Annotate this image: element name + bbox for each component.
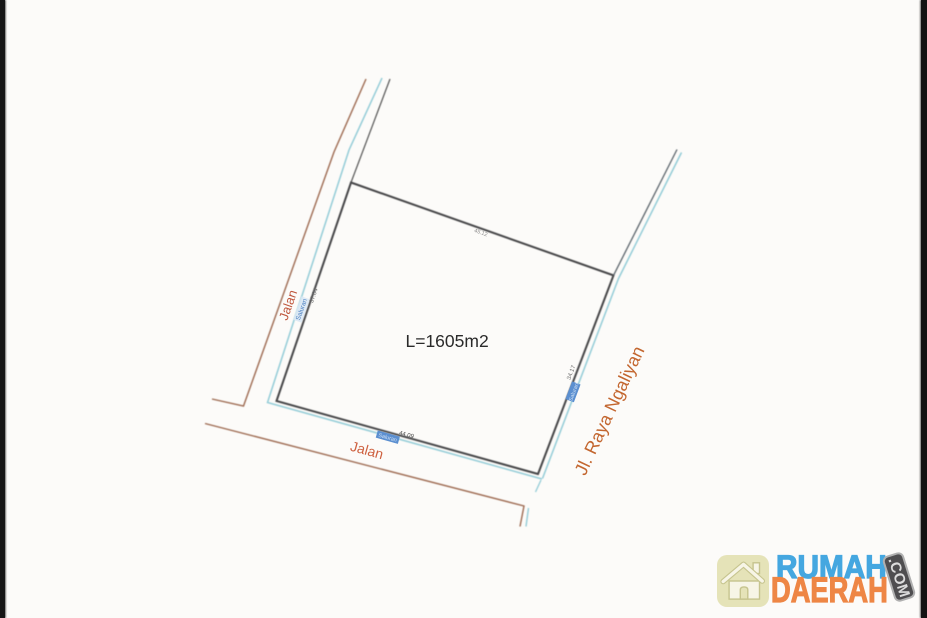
svg-text:37.04: 37.04 — [309, 287, 320, 304]
svg-text:L=1605m2: L=1605m2 — [406, 331, 489, 351]
svg-text:Jl. Raya Ngaliyan: Jl. Raya Ngaliyan — [571, 343, 649, 478]
svg-text:Jalan: Jalan — [349, 438, 386, 462]
